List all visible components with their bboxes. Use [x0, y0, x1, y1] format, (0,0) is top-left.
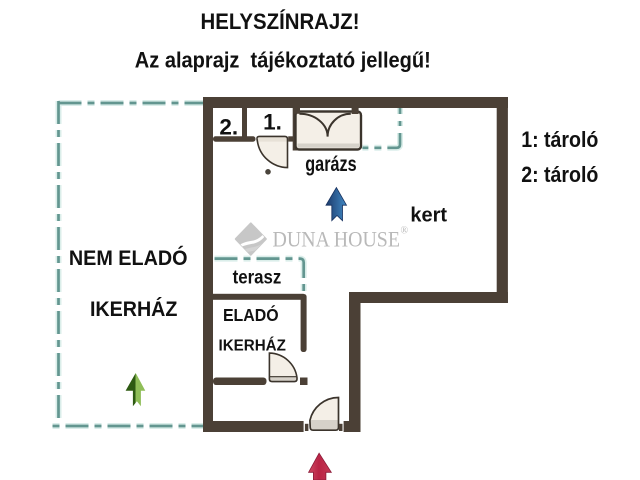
svg-text:kert: kert — [410, 203, 447, 226]
svg-text:Az alaprajz tájékoztató jelle: Az alaprajz tájékoztató jellegű! — [135, 48, 431, 73]
svg-text:2: tároló: 2: tároló — [521, 162, 598, 187]
svg-text:1.: 1. — [263, 109, 282, 134]
svg-text:IKERHÁZ: IKERHÁZ — [219, 338, 287, 355]
svg-text:ELADÓ: ELADÓ — [223, 304, 279, 325]
svg-text:NEM ELADÓ: NEM ELADÓ — [69, 246, 188, 270]
svg-text:terasz: terasz — [233, 267, 282, 289]
svg-text:IKERHÁZ: IKERHÁZ — [90, 298, 178, 321]
svg-text:2.: 2. — [219, 114, 238, 139]
svg-text:1: tároló: 1: tároló — [521, 127, 598, 152]
svg-text:HELYSZÍNRAJZ!: HELYSZÍNRAJZ! — [201, 9, 360, 34]
svg-text:®: ® — [401, 226, 409, 237]
svg-text:DUNA HOUSE: DUNA HOUSE — [273, 226, 401, 251]
svg-text:garázs: garázs — [305, 153, 356, 176]
